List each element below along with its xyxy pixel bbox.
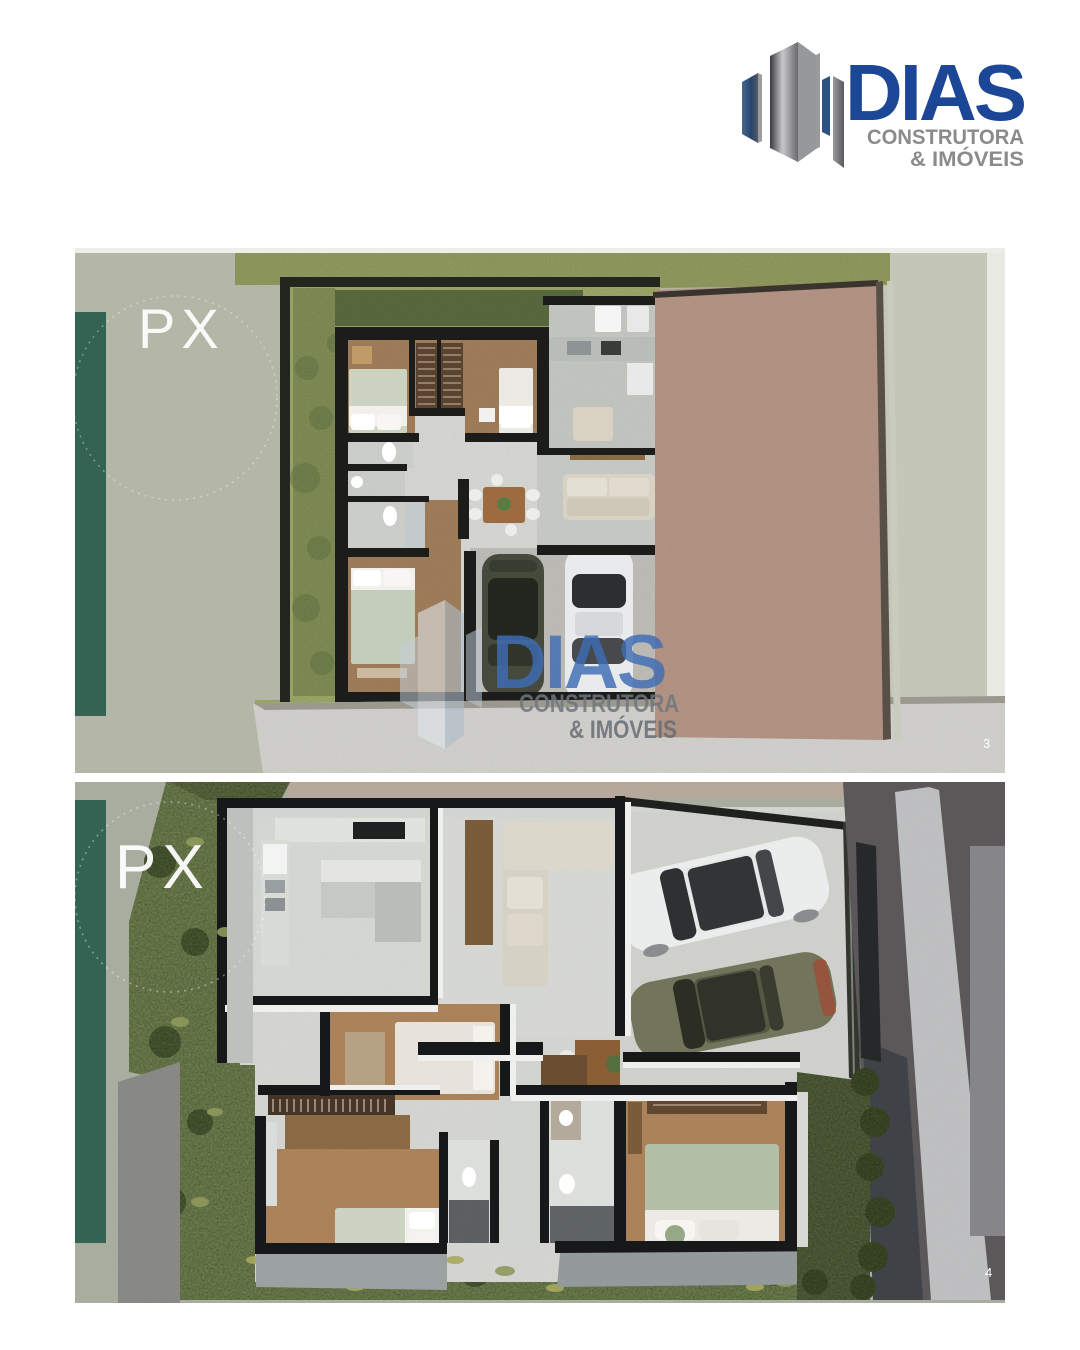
svg-text:& IMÓVEIS: & IMÓVEIS (569, 714, 677, 744)
svg-text:4: 4 (985, 1265, 992, 1280)
svg-text:CONSTRUTORA: CONSTRUTORA (867, 126, 1024, 149)
svg-text:PX: PX (115, 833, 210, 902)
svg-text:PX: PX (138, 297, 225, 360)
svg-text:CONSTRUTORA: CONSTRUTORA (519, 690, 679, 718)
svg-text:& IMÓVEIS: & IMÓVEIS (910, 147, 1024, 171)
svg-text:3: 3 (983, 736, 990, 751)
svg-text:DIAS: DIAS (845, 48, 1025, 137)
